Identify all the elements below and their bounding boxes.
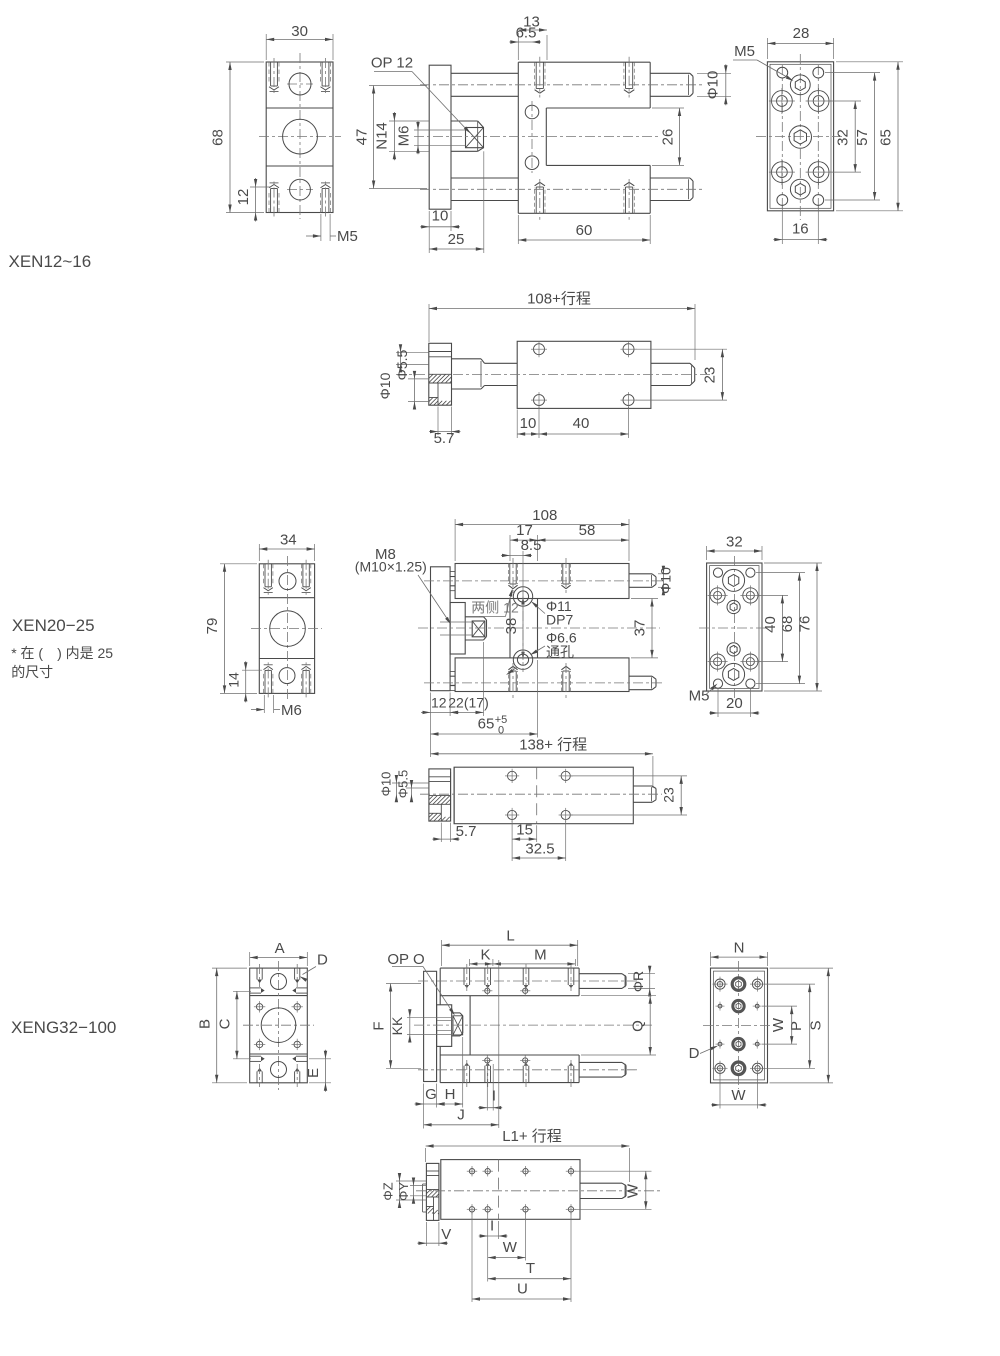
svg-text:Q: Q <box>630 1020 647 1032</box>
svg-text:W: W <box>770 1017 787 1032</box>
svg-text:14: 14 <box>226 672 242 688</box>
svg-text:47: 47 <box>354 129 371 146</box>
svg-text:65: 65 <box>478 716 495 733</box>
svg-text:J: J <box>457 1107 465 1124</box>
svg-text:58: 58 <box>579 522 596 539</box>
svg-text:T: T <box>526 1260 535 1277</box>
svg-text:108+行程: 108+行程 <box>527 291 591 308</box>
svg-text:M5: M5 <box>689 688 710 705</box>
svg-text:XENG32−100: XENG32−100 <box>11 1018 116 1037</box>
svg-text:L1+ 行程: L1+ 行程 <box>502 1128 562 1145</box>
svg-text:10: 10 <box>432 208 449 225</box>
svg-text:6.5: 6.5 <box>516 25 537 42</box>
svg-text:22(17): 22(17) <box>448 695 488 711</box>
svg-text:M: M <box>534 947 547 964</box>
svg-text:的尺寸: 的尺寸 <box>11 664 53 680</box>
svg-text:W: W <box>625 1183 642 1198</box>
svg-text:C: C <box>217 1018 234 1029</box>
svg-text:32: 32 <box>726 534 743 551</box>
svg-text:D: D <box>689 1045 700 1062</box>
svg-text:XEN20−25: XEN20−25 <box>12 616 95 635</box>
svg-text:H: H <box>445 1086 456 1103</box>
svg-text:ΦZ: ΦZ <box>381 1182 396 1200</box>
svg-text:34: 34 <box>280 532 297 549</box>
svg-text:U: U <box>517 1280 528 1297</box>
svg-text:通孔: 通孔 <box>546 644 574 660</box>
svg-text:15: 15 <box>516 821 533 838</box>
svg-text:Φ10: Φ10 <box>705 71 722 100</box>
svg-text:20: 20 <box>726 695 743 712</box>
svg-text:I: I <box>492 1088 496 1105</box>
svg-text:OP 12: OP 12 <box>371 55 413 72</box>
svg-text:23: 23 <box>661 787 677 803</box>
svg-text:* 在 ( ) 内是 25: * 在 ( ) 内是 25 <box>11 645 113 661</box>
svg-text:F: F <box>370 1021 387 1030</box>
svg-text:108: 108 <box>532 507 557 524</box>
svg-text:26: 26 <box>660 129 677 146</box>
svg-text:5.7: 5.7 <box>456 823 477 840</box>
svg-text:Φ10: Φ10 <box>379 772 394 797</box>
svg-text:S: S <box>808 1020 825 1030</box>
svg-text:A: A <box>275 940 285 957</box>
svg-text:M6: M6 <box>281 702 302 719</box>
svg-text:W: W <box>503 1239 518 1256</box>
svg-text:10: 10 <box>520 415 537 432</box>
svg-text:Φ5.5: Φ5.5 <box>396 770 411 798</box>
svg-text:B: B <box>197 1019 214 1029</box>
svg-text:60: 60 <box>576 222 593 239</box>
svg-text:32: 32 <box>835 129 852 146</box>
svg-text:8.5: 8.5 <box>521 537 542 554</box>
svg-text:两侧 12: 两侧 12 <box>471 600 519 616</box>
svg-text:N14: N14 <box>374 122 391 150</box>
svg-text:28: 28 <box>793 25 810 42</box>
svg-text:37: 37 <box>632 620 649 637</box>
svg-text:K: K <box>480 947 490 964</box>
svg-text:5.7: 5.7 <box>434 430 455 447</box>
svg-text:30: 30 <box>291 23 308 40</box>
svg-text:Φ10: Φ10 <box>658 567 674 594</box>
svg-text:L: L <box>506 928 514 945</box>
svg-text:12: 12 <box>431 695 447 711</box>
svg-text:ΦY: ΦY <box>396 1182 411 1201</box>
svg-text:16: 16 <box>792 220 809 237</box>
svg-text:Φ10: Φ10 <box>377 372 393 399</box>
svg-text:65: 65 <box>878 129 895 146</box>
svg-text:DP7: DP7 <box>546 612 573 628</box>
svg-text:N: N <box>734 940 745 957</box>
svg-text:68: 68 <box>779 616 796 633</box>
svg-text:40: 40 <box>573 415 590 432</box>
svg-text:(M10×1.25): (M10×1.25) <box>355 559 427 575</box>
svg-text:M5: M5 <box>734 43 755 60</box>
svg-text:38: 38 <box>503 618 520 635</box>
svg-text:G: G <box>425 1086 437 1103</box>
svg-text:P: P <box>788 1021 805 1031</box>
svg-text:XEN12~16: XEN12~16 <box>9 252 92 271</box>
svg-text:I: I <box>490 1218 494 1235</box>
svg-text:Φ5.5: Φ5.5 <box>394 349 410 380</box>
svg-text:138+ 行程: 138+ 行程 <box>519 736 587 753</box>
svg-text:E: E <box>305 1068 322 1078</box>
svg-text:32.5: 32.5 <box>525 840 554 857</box>
svg-text:57: 57 <box>854 129 871 146</box>
svg-text:W: W <box>731 1087 746 1104</box>
svg-text:79: 79 <box>204 618 221 635</box>
svg-text:12: 12 <box>235 189 252 206</box>
svg-text:23: 23 <box>702 367 719 384</box>
svg-text:KK: KK <box>389 1016 405 1035</box>
svg-text:40: 40 <box>762 616 779 633</box>
svg-text:0: 0 <box>498 725 504 737</box>
svg-text:M5: M5 <box>337 228 358 245</box>
svg-text:V: V <box>441 1226 451 1243</box>
svg-text:68: 68 <box>210 129 227 146</box>
svg-text:25: 25 <box>448 231 465 248</box>
svg-text:OP O: OP O <box>387 951 424 968</box>
svg-text:M6: M6 <box>396 126 413 147</box>
svg-text:ΦR: ΦR <box>630 971 646 992</box>
svg-text:D: D <box>317 952 328 969</box>
